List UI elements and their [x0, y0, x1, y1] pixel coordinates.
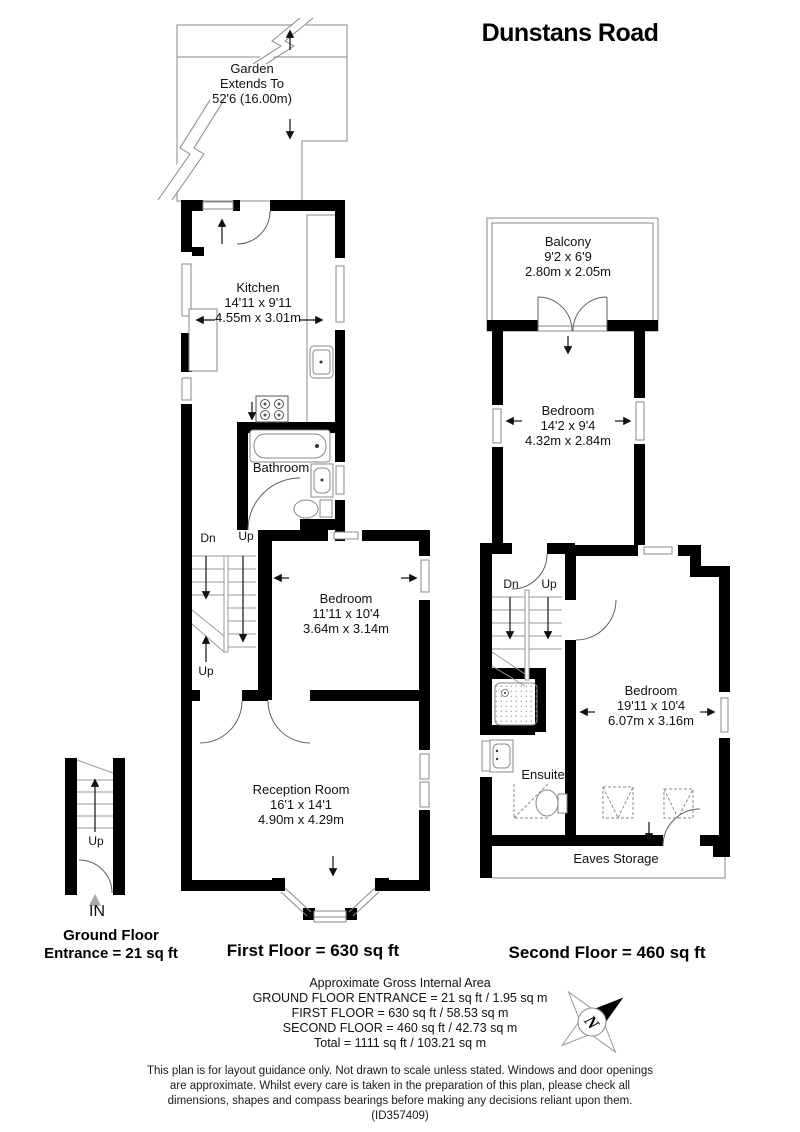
bathroom-name: Bathroom: [253, 460, 309, 475]
sf-bedroom-rear-label: Bedroom 19'11 x 10'4 6.07m x 3.16m: [608, 683, 694, 728]
sf-bedroom-rear-name: Bedroom: [608, 683, 694, 698]
kitchen-dims-m: 4.55m x 3.01m: [215, 310, 301, 325]
bay-window: [281, 888, 379, 922]
ensuite-sink-icon: [490, 740, 513, 772]
ff-bedroom-name: Bedroom: [303, 591, 389, 606]
garden-outline: [177, 25, 347, 201]
entrance-in-label: IN: [89, 903, 105, 921]
disclaimer-text: This plan is for layout guidance only. N…: [140, 1064, 660, 1124]
bathroom-label: Bathroom: [253, 460, 309, 475]
ensuite-label: Ensuite: [521, 767, 564, 782]
sf-bedroom-rear-dims-m: 6.07m x 3.16m: [608, 713, 694, 728]
balcony-label: Balcony 9'2 x 6'9 2.80m x 2.05m: [525, 234, 611, 279]
sf-bedroom-front-name: Bedroom: [525, 403, 611, 418]
ff-bedroom-label: Bedroom 11'11 x 10'4 3.64m x 3.14m: [303, 591, 389, 636]
gf-stairs-up-label: Up: [88, 834, 103, 848]
ff-bedroom-dims-m: 3.64m x 3.14m: [303, 621, 389, 636]
ff-bedroom-dims-ft: 11'11 x 10'4: [303, 606, 389, 621]
ensuite-name: Ensuite: [521, 767, 564, 782]
sf-bedroom-front-dims-ft: 14'2 x 9'4: [525, 418, 611, 433]
area-summary-second: SECOND FLOOR = 460 sq ft / 42.73 sq m: [253, 1021, 548, 1036]
area-summary-heading: Approximate Gross Internal Area: [253, 976, 548, 991]
area-summary-ground: GROUND FLOOR ENTRANCE = 21 sq ft / 1.95 …: [253, 991, 548, 1006]
reception-dims-ft: 16'1 x 14'1: [253, 797, 350, 812]
eaves-storage-label: Eaves Storage: [573, 851, 658, 866]
stove-hob-icon: [256, 396, 288, 422]
compass-icon: N: [539, 969, 646, 1076]
ensuite-toilet-icon: [536, 790, 567, 816]
first-floor-caption: First Floor = 630 sq ft: [227, 941, 399, 961]
wardrobe-icons: [603, 787, 693, 818]
balcony-name: Balcony: [525, 234, 611, 249]
kitchen-counter-icon: [307, 215, 335, 422]
area-summary: Approximate Gross Internal Area GROUND F…: [253, 976, 548, 1051]
ff-stairs-up-label: Up: [238, 529, 253, 543]
reception-name: Reception Room: [253, 782, 350, 797]
garden-dimension: 52'6 (16.00m): [212, 91, 292, 106]
garden-name: Garden: [212, 61, 292, 76]
ground-floor-caption-line1: Ground Floor: [44, 927, 178, 945]
bathtub-icon: [250, 430, 330, 462]
ff-stairs-up-bottom-label: Up: [198, 664, 213, 678]
sf-bedroom-front-dims-m: 4.32m x 2.84m: [525, 433, 611, 448]
bathroom-sink-icon: [311, 464, 333, 497]
kitchen-label: Kitchen 14'11 x 9'11 4.55m x 3.01m: [215, 280, 301, 325]
second-floor-caption: Second Floor = 460 sq ft: [509, 943, 706, 963]
kitchen-dims-ft: 14'11 x 9'11: [215, 295, 301, 310]
floorplan-page: N Dunstans Road Garden Extends To 52'6 (…: [0, 0, 800, 1132]
first-floor-stairs: [192, 556, 256, 652]
ground-floor-caption-line2: Entrance = 21 sq ft: [44, 945, 178, 963]
kitchen-sink-icon: [310, 346, 333, 378]
sf-bedroom-front-label: Bedroom 14'2 x 9'4 4.32m x 2.84m: [525, 403, 611, 448]
garden-label: Garden Extends To 52'6 (16.00m): [212, 61, 292, 106]
reception-dims-m: 4.90m x 4.29m: [253, 812, 350, 827]
ff-stairs-down-label: Dn: [200, 531, 215, 545]
balcony-dims-ft: 9'2 x 6'9: [525, 249, 611, 264]
garden-extends: Extends To: [212, 76, 292, 91]
reception-label: Reception Room 16'1 x 14'1 4.90m x 4.29m: [253, 782, 350, 827]
eaves-storage-name: Eaves Storage: [573, 851, 658, 866]
kitchen-name: Kitchen: [215, 280, 301, 295]
toilet-icon: [294, 500, 332, 518]
shower-icon: [495, 683, 537, 725]
kitchen-unit-icon: [189, 309, 217, 371]
sf-stairs-down-label: Dn: [503, 577, 518, 591]
second-floor-doors: [512, 297, 700, 846]
page-title: Dunstans Road: [482, 19, 659, 48]
area-summary-total: Total = 1111 sq ft / 103.21 sq m: [253, 1036, 548, 1051]
sf-bedroom-rear-dims-ft: 19'11 x 10'4: [608, 698, 694, 713]
ground-floor-caption: Ground Floor Entrance = 21 sq ft: [44, 927, 178, 963]
area-summary-first: FIRST FLOOR = 630 sq ft / 58.53 sq m: [253, 1006, 548, 1021]
sf-stairs-up-label: Up: [541, 577, 556, 591]
balcony-dims-m: 2.80m x 2.05m: [525, 264, 611, 279]
